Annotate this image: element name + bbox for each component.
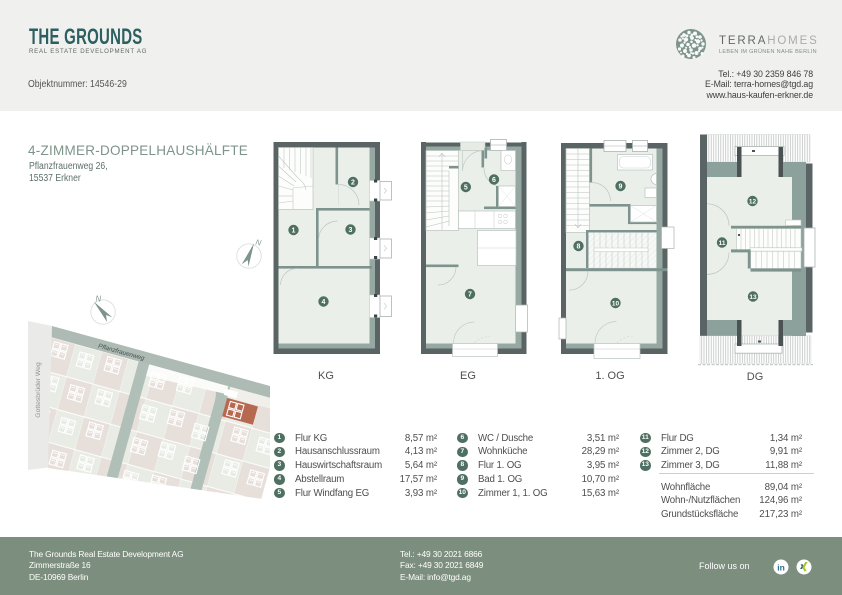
svg-text:9: 9: [619, 184, 623, 191]
svg-text:7: 7: [468, 292, 472, 299]
svg-text:2: 2: [351, 180, 355, 187]
svg-text:N: N: [255, 238, 263, 248]
svg-text:12: 12: [749, 199, 757, 206]
svg-text:13: 13: [749, 294, 757, 301]
svg-text:5: 5: [464, 185, 468, 192]
svg-text:3: 3: [349, 227, 353, 234]
svg-text:10: 10: [612, 301, 620, 308]
svg-text:N: N: [95, 294, 101, 303]
svg-text:11: 11: [719, 240, 726, 247]
svg-text:4: 4: [322, 299, 326, 306]
svg-text:in: in: [777, 562, 785, 572]
svg-text:Gottesbrüder Weg: Gottesbrüder Weg: [35, 362, 42, 418]
svg-text:1: 1: [292, 228, 296, 235]
svg-text:6: 6: [492, 177, 496, 184]
svg-text:8: 8: [577, 244, 581, 251]
